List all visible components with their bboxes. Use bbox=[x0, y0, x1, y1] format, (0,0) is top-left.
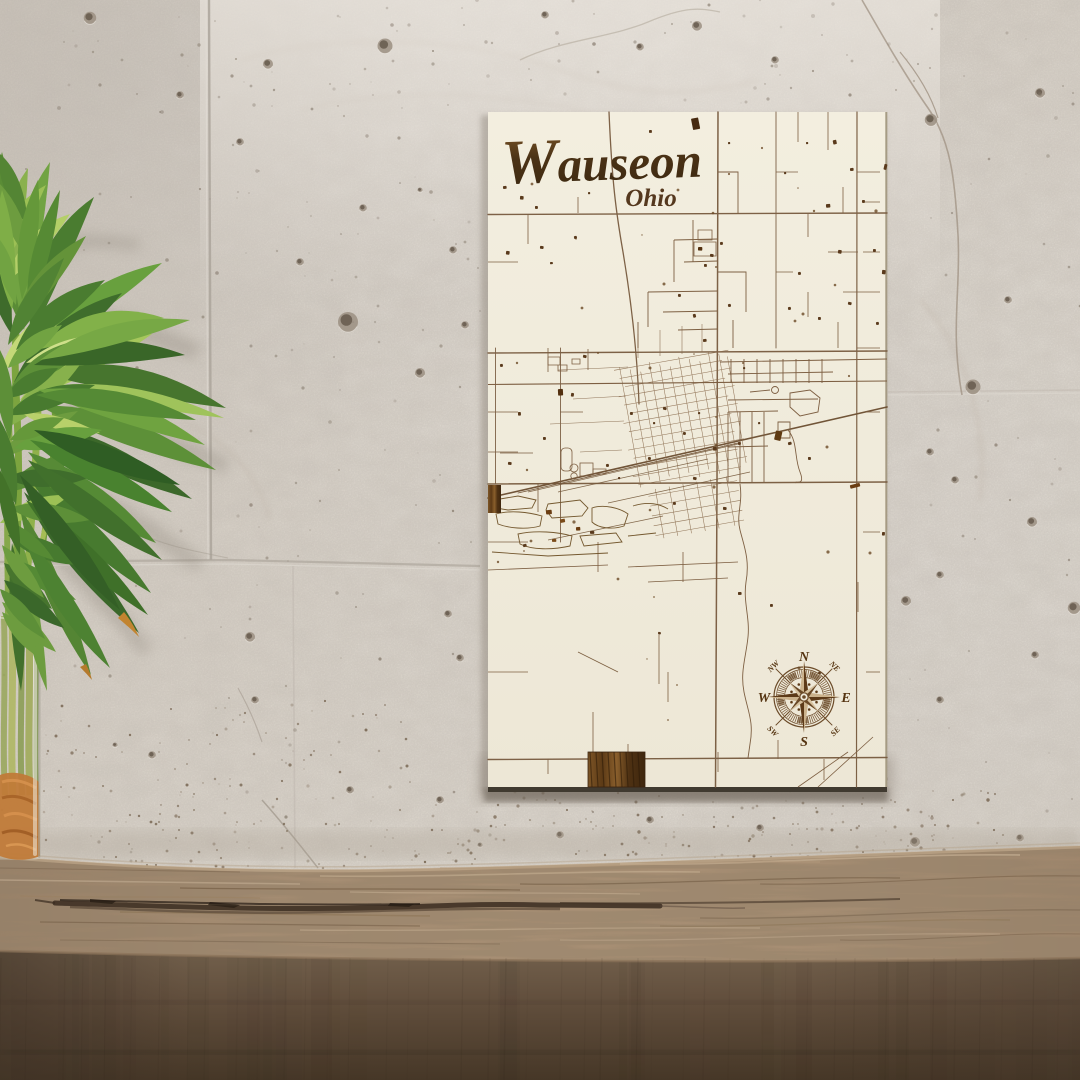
svg-text:S: S bbox=[800, 735, 808, 750]
svg-text:E: E bbox=[840, 691, 850, 706]
svg-text:Ohio: Ohio bbox=[625, 185, 676, 212]
svg-text:W: W bbox=[758, 691, 772, 706]
svg-text:N: N bbox=[798, 650, 810, 665]
